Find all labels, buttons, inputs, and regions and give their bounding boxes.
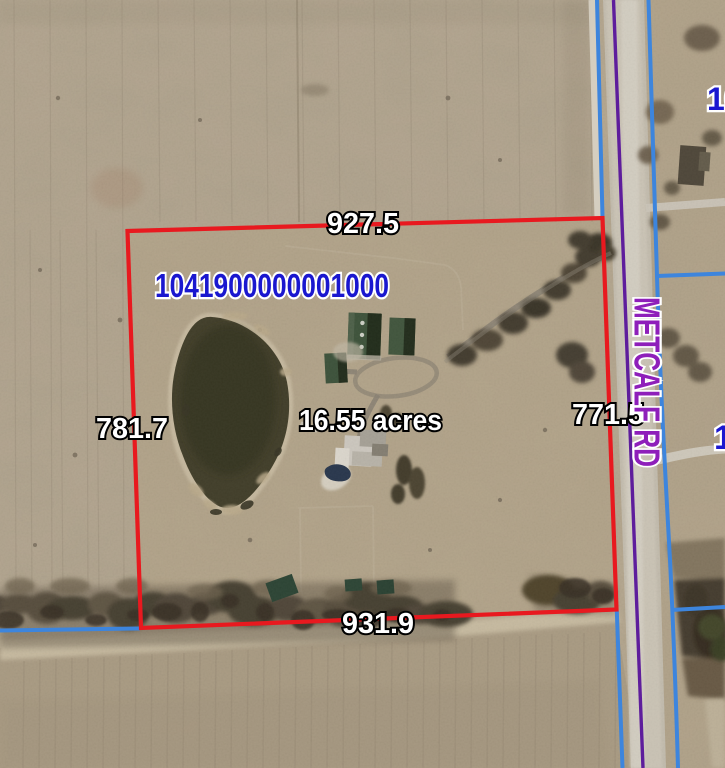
svg-text:1: 1 xyxy=(714,419,725,457)
svg-text:931.9: 931.9 xyxy=(342,608,414,640)
svg-text:927.5: 927.5 xyxy=(327,208,399,240)
svg-text:10: 10 xyxy=(707,81,725,117)
svg-text:781.7: 781.7 xyxy=(96,413,168,445)
svg-text:1041900000001000: 1041900000001000 xyxy=(155,267,389,304)
svg-text:16.55 acres: 16.55 acres xyxy=(299,405,442,437)
svg-text:METCALF RD: METCALF RD xyxy=(626,297,667,467)
